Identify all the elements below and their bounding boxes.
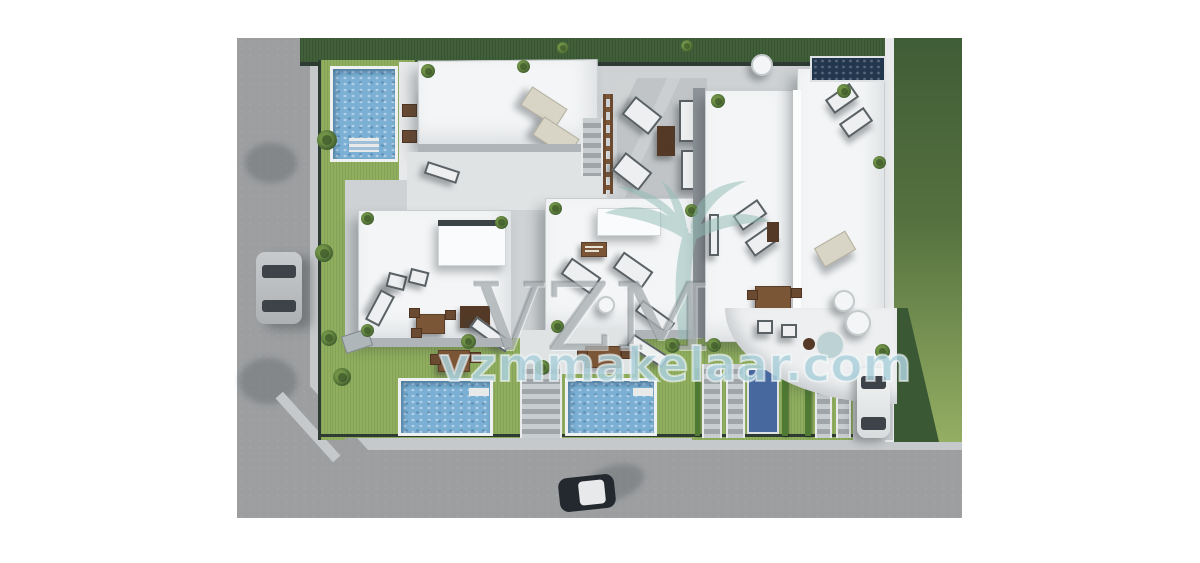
lawn-bush <box>557 42 569 54</box>
roof-planter <box>421 64 435 78</box>
roof-planter <box>711 94 725 108</box>
outdoor-cabinet <box>657 126 675 156</box>
silver-car <box>256 252 302 324</box>
parasol <box>751 54 773 76</box>
stair-block <box>581 118 603 176</box>
dining-chair <box>791 288 802 298</box>
roof-planter <box>517 60 530 73</box>
dining-chair <box>409 308 420 318</box>
watermark-website: vzmmakelaar.com <box>439 342 912 389</box>
roof-planter <box>361 212 374 225</box>
rooftop-pool <box>810 56 886 82</box>
car-rear-window <box>861 417 886 430</box>
palm-tree <box>321 330 337 346</box>
roof-planter <box>873 156 886 169</box>
car-roof <box>578 479 606 506</box>
dining-chair <box>445 310 456 320</box>
roof-planter <box>361 324 374 337</box>
car-rear-window <box>262 300 297 313</box>
roof-planter <box>837 84 851 98</box>
villa-1-parapet <box>418 144 598 152</box>
dark-car <box>557 473 616 513</box>
pool-steps <box>349 138 379 152</box>
dining-chair <box>411 328 422 338</box>
round-daybed <box>845 310 871 336</box>
lawn-bush <box>681 40 693 52</box>
patio-chair <box>402 130 417 143</box>
palm-tree <box>333 368 351 386</box>
render-canvas: VZM vzmmakelaar.com <box>0 0 1200 563</box>
left-sidewalk <box>310 38 318 440</box>
aerial-render: VZM vzmmakelaar.com <box>237 38 962 518</box>
round-table <box>833 290 855 312</box>
roof-planter <box>495 216 508 229</box>
patio-chair-pair <box>781 324 797 338</box>
palm-tree <box>315 244 333 262</box>
tree-shadow <box>245 143 297 183</box>
roof-planter <box>549 202 562 215</box>
patio-chair <box>402 104 417 117</box>
car-windshield <box>262 265 297 278</box>
palm-tree <box>317 130 337 150</box>
